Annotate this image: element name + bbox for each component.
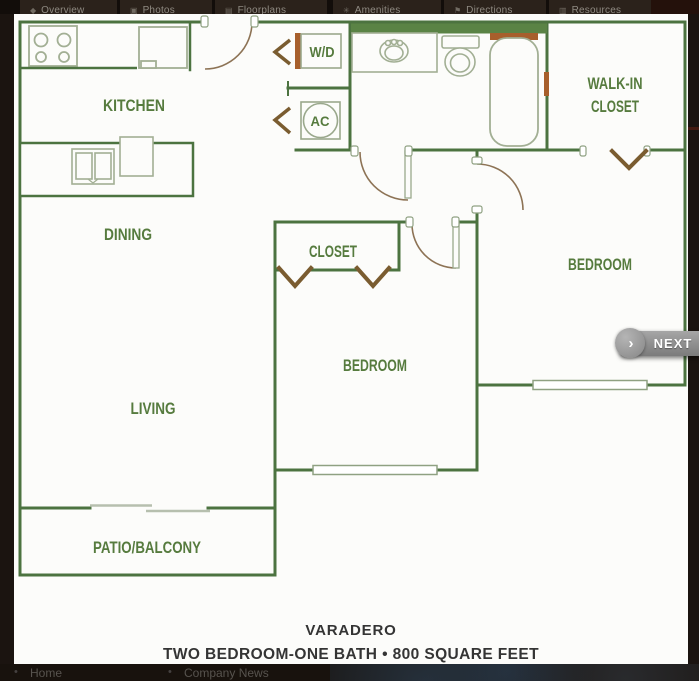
sink-icon <box>380 40 408 63</box>
footer-link-home[interactable]: Home <box>30 666 62 680</box>
bathroom-door-arc <box>360 152 408 200</box>
towel-bar <box>544 72 549 96</box>
windows <box>313 381 647 475</box>
kitchen-island <box>20 137 193 196</box>
kitchen-label: KITCHEN <box>103 96 165 115</box>
stove-icon <box>29 26 77 66</box>
bifold-chevron-icon <box>275 40 290 64</box>
bedroom1-label: BEDROOM <box>343 356 407 375</box>
bifold-chevron-icon <box>275 108 290 133</box>
ac-label: AC <box>311 113 330 129</box>
window <box>313 466 437 475</box>
patio-label: PATIO/BALCONY <box>93 538 202 557</box>
closet-label: CLOSET <box>309 242 357 261</box>
next-button[interactable]: › NEXT <box>620 331 699 356</box>
footer-photo <box>330 664 699 681</box>
refrigerator-icon <box>139 27 187 68</box>
bedroom2-door-arc <box>477 164 523 210</box>
window <box>533 381 647 390</box>
toilet-icon <box>442 36 479 76</box>
double-sink-icon <box>72 149 114 184</box>
bifold-chevron-icon <box>279 268 311 286</box>
bifold-chevron-icon <box>357 268 389 286</box>
bedroom1-door-arc <box>412 224 456 268</box>
wd-label: W/D <box>310 44 335 61</box>
floorplan-title: VARADERO <box>14 622 688 639</box>
walkin-closet-label-line1: WALK-IN <box>588 74 643 93</box>
bathroom <box>352 33 549 146</box>
next-button-label: NEXT <box>650 331 696 356</box>
bifold-chevron-icon <box>612 151 646 168</box>
entry-door-arc <box>205 22 252 69</box>
floorplan-page: { "nav": { "items": [ {"label": "Overvie… <box>0 0 699 681</box>
bathtub-icon <box>490 38 538 146</box>
bullet-icon: • <box>14 666 18 678</box>
floorplan-subtitle: TWO BEDROOM-ONE BATH • 800 SQUARE FEET <box>14 646 688 664</box>
floorplan-drawing: W/D AC <box>0 0 699 681</box>
door-leaves <box>405 151 459 268</box>
ac-closet: AC <box>275 102 340 139</box>
page-footer: • Home • Company News <box>0 664 699 681</box>
footer-link-company-news[interactable]: Company News <box>184 666 269 680</box>
sliding-door <box>90 506 210 512</box>
bullet-icon: • <box>168 666 172 678</box>
dining-label: DINING <box>104 225 152 244</box>
bedroom2-label: BEDROOM <box>568 255 632 274</box>
washer-dryer-closet: W/D <box>275 33 341 69</box>
living-label: LIVING <box>131 399 176 418</box>
walkin-closet-label-line2: CLOSET <box>591 97 639 116</box>
thick-wall <box>351 24 547 34</box>
dishwasher-icon <box>120 137 153 176</box>
chevron-right-icon: › <box>615 328 645 358</box>
